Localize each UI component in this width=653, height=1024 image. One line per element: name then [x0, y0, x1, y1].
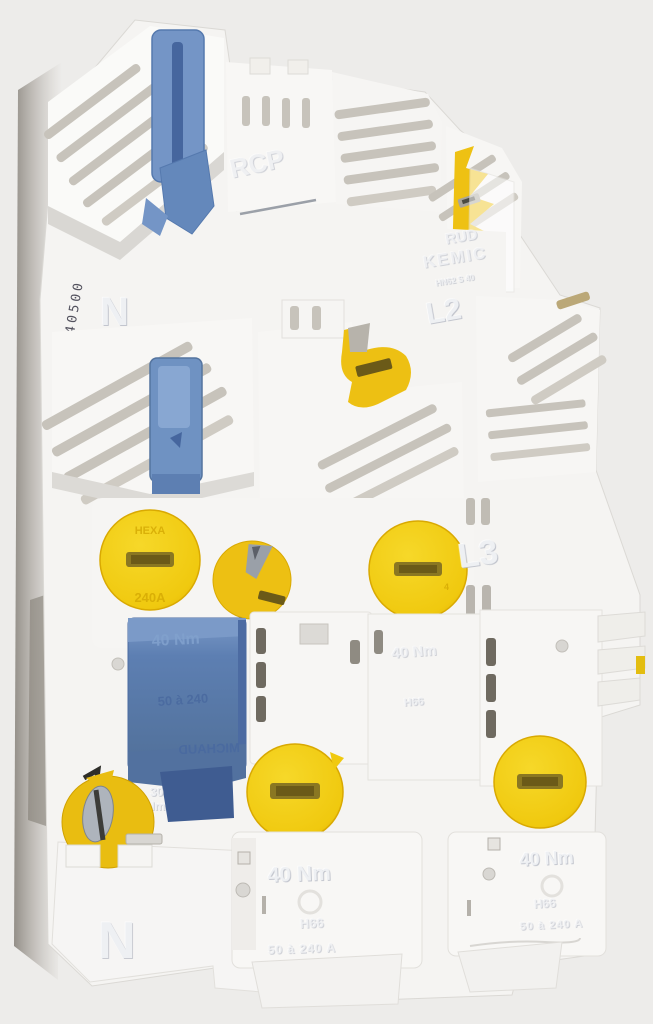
- h66-label-center: H66: [300, 915, 324, 931]
- pivot-pin: [112, 658, 124, 670]
- cap-rating-label: 240A: [134, 590, 166, 605]
- inspection-window: [300, 624, 328, 644]
- h66-label-faint: H66: [403, 696, 424, 709]
- pivot-pin: [556, 640, 568, 652]
- mount-tab: [66, 845, 100, 867]
- h66-label-right: H66: [533, 896, 556, 911]
- torque-label-faint: 40 Nm: [391, 642, 437, 662]
- right-mid-fuse-holder: [476, 291, 611, 482]
- yellow-detail: [636, 656, 645, 674]
- yellow-screw-cap-1: HEXA 240A: [100, 510, 200, 610]
- range-label-center: 50 à 240 A: [268, 941, 337, 957]
- torque-30-line1: 30: [150, 785, 164, 799]
- cap-mark-4: 4: [444, 582, 449, 592]
- yellow-screw-cap-5: [494, 736, 586, 828]
- top-middle-fuse-holder: RCP: [226, 58, 336, 214]
- center-cartridge-mid: 40 Nm H66: [368, 614, 482, 780]
- cartridge-foot: [252, 954, 402, 1008]
- blue-cover-foot: [160, 766, 234, 822]
- blue-torque-label: 40 Nm: [151, 631, 200, 650]
- pivot-pin: [483, 868, 495, 880]
- mid-left-fuse-holder: [35, 318, 254, 510]
- torque-label-right: 40 Nm: [519, 847, 574, 870]
- center-cartridge-upper: [250, 612, 372, 764]
- blue-brand-mirrored: MICHAUD: [178, 740, 240, 757]
- neutral-label-bottom: N: [98, 912, 136, 970]
- phase-label-l3: L3: [456, 533, 501, 576]
- terminal-cartridge-center: 40 Nm H66 50 à 240 A: [232, 832, 422, 1008]
- cap-brand-label: HEXA: [135, 525, 166, 537]
- fuse-block-illustration: RCP RUD KEMIC HN62 S 40 L2 140500: [0, 0, 653, 1024]
- pivot-pin: [236, 883, 250, 897]
- product-photo: RCP RUD KEMIC HN62 S 40 L2 140500: [0, 0, 653, 1024]
- blue-lever-middle: [150, 358, 202, 494]
- torque-label-center: 40 Nm: [267, 862, 331, 887]
- mount-tab: [118, 845, 152, 867]
- phase-label-l2: L2: [423, 292, 463, 331]
- blue-lever-top: [142, 30, 214, 236]
- yellow-screw-cap-4: [247, 744, 344, 840]
- yellow-screw-cap-3: 4: [369, 521, 467, 619]
